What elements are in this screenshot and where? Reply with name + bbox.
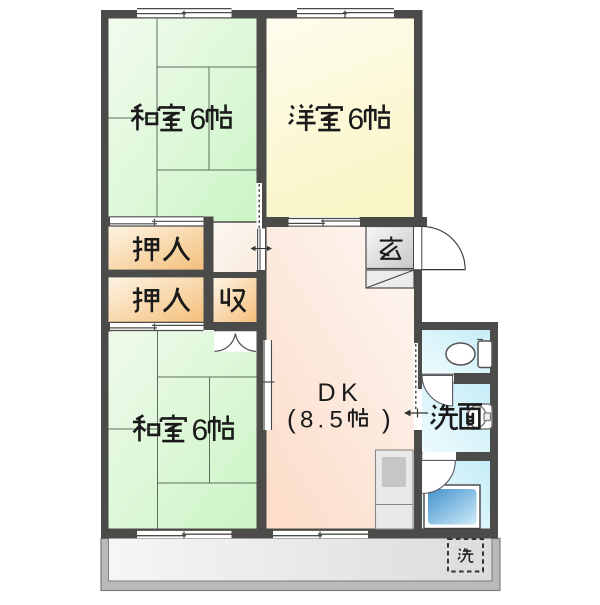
svg-text:6: 6 — [192, 414, 209, 447]
svg-text:6: 6 — [190, 103, 207, 136]
svg-text:): ) — [382, 404, 391, 434]
svg-text:(: ( — [287, 404, 296, 434]
svg-text:.: . — [318, 407, 325, 434]
svg-text:6: 6 — [348, 103, 365, 136]
svg-text:8: 8 — [300, 407, 313, 434]
svg-text:DK: DK — [318, 379, 364, 407]
svg-text:5: 5 — [330, 407, 343, 434]
